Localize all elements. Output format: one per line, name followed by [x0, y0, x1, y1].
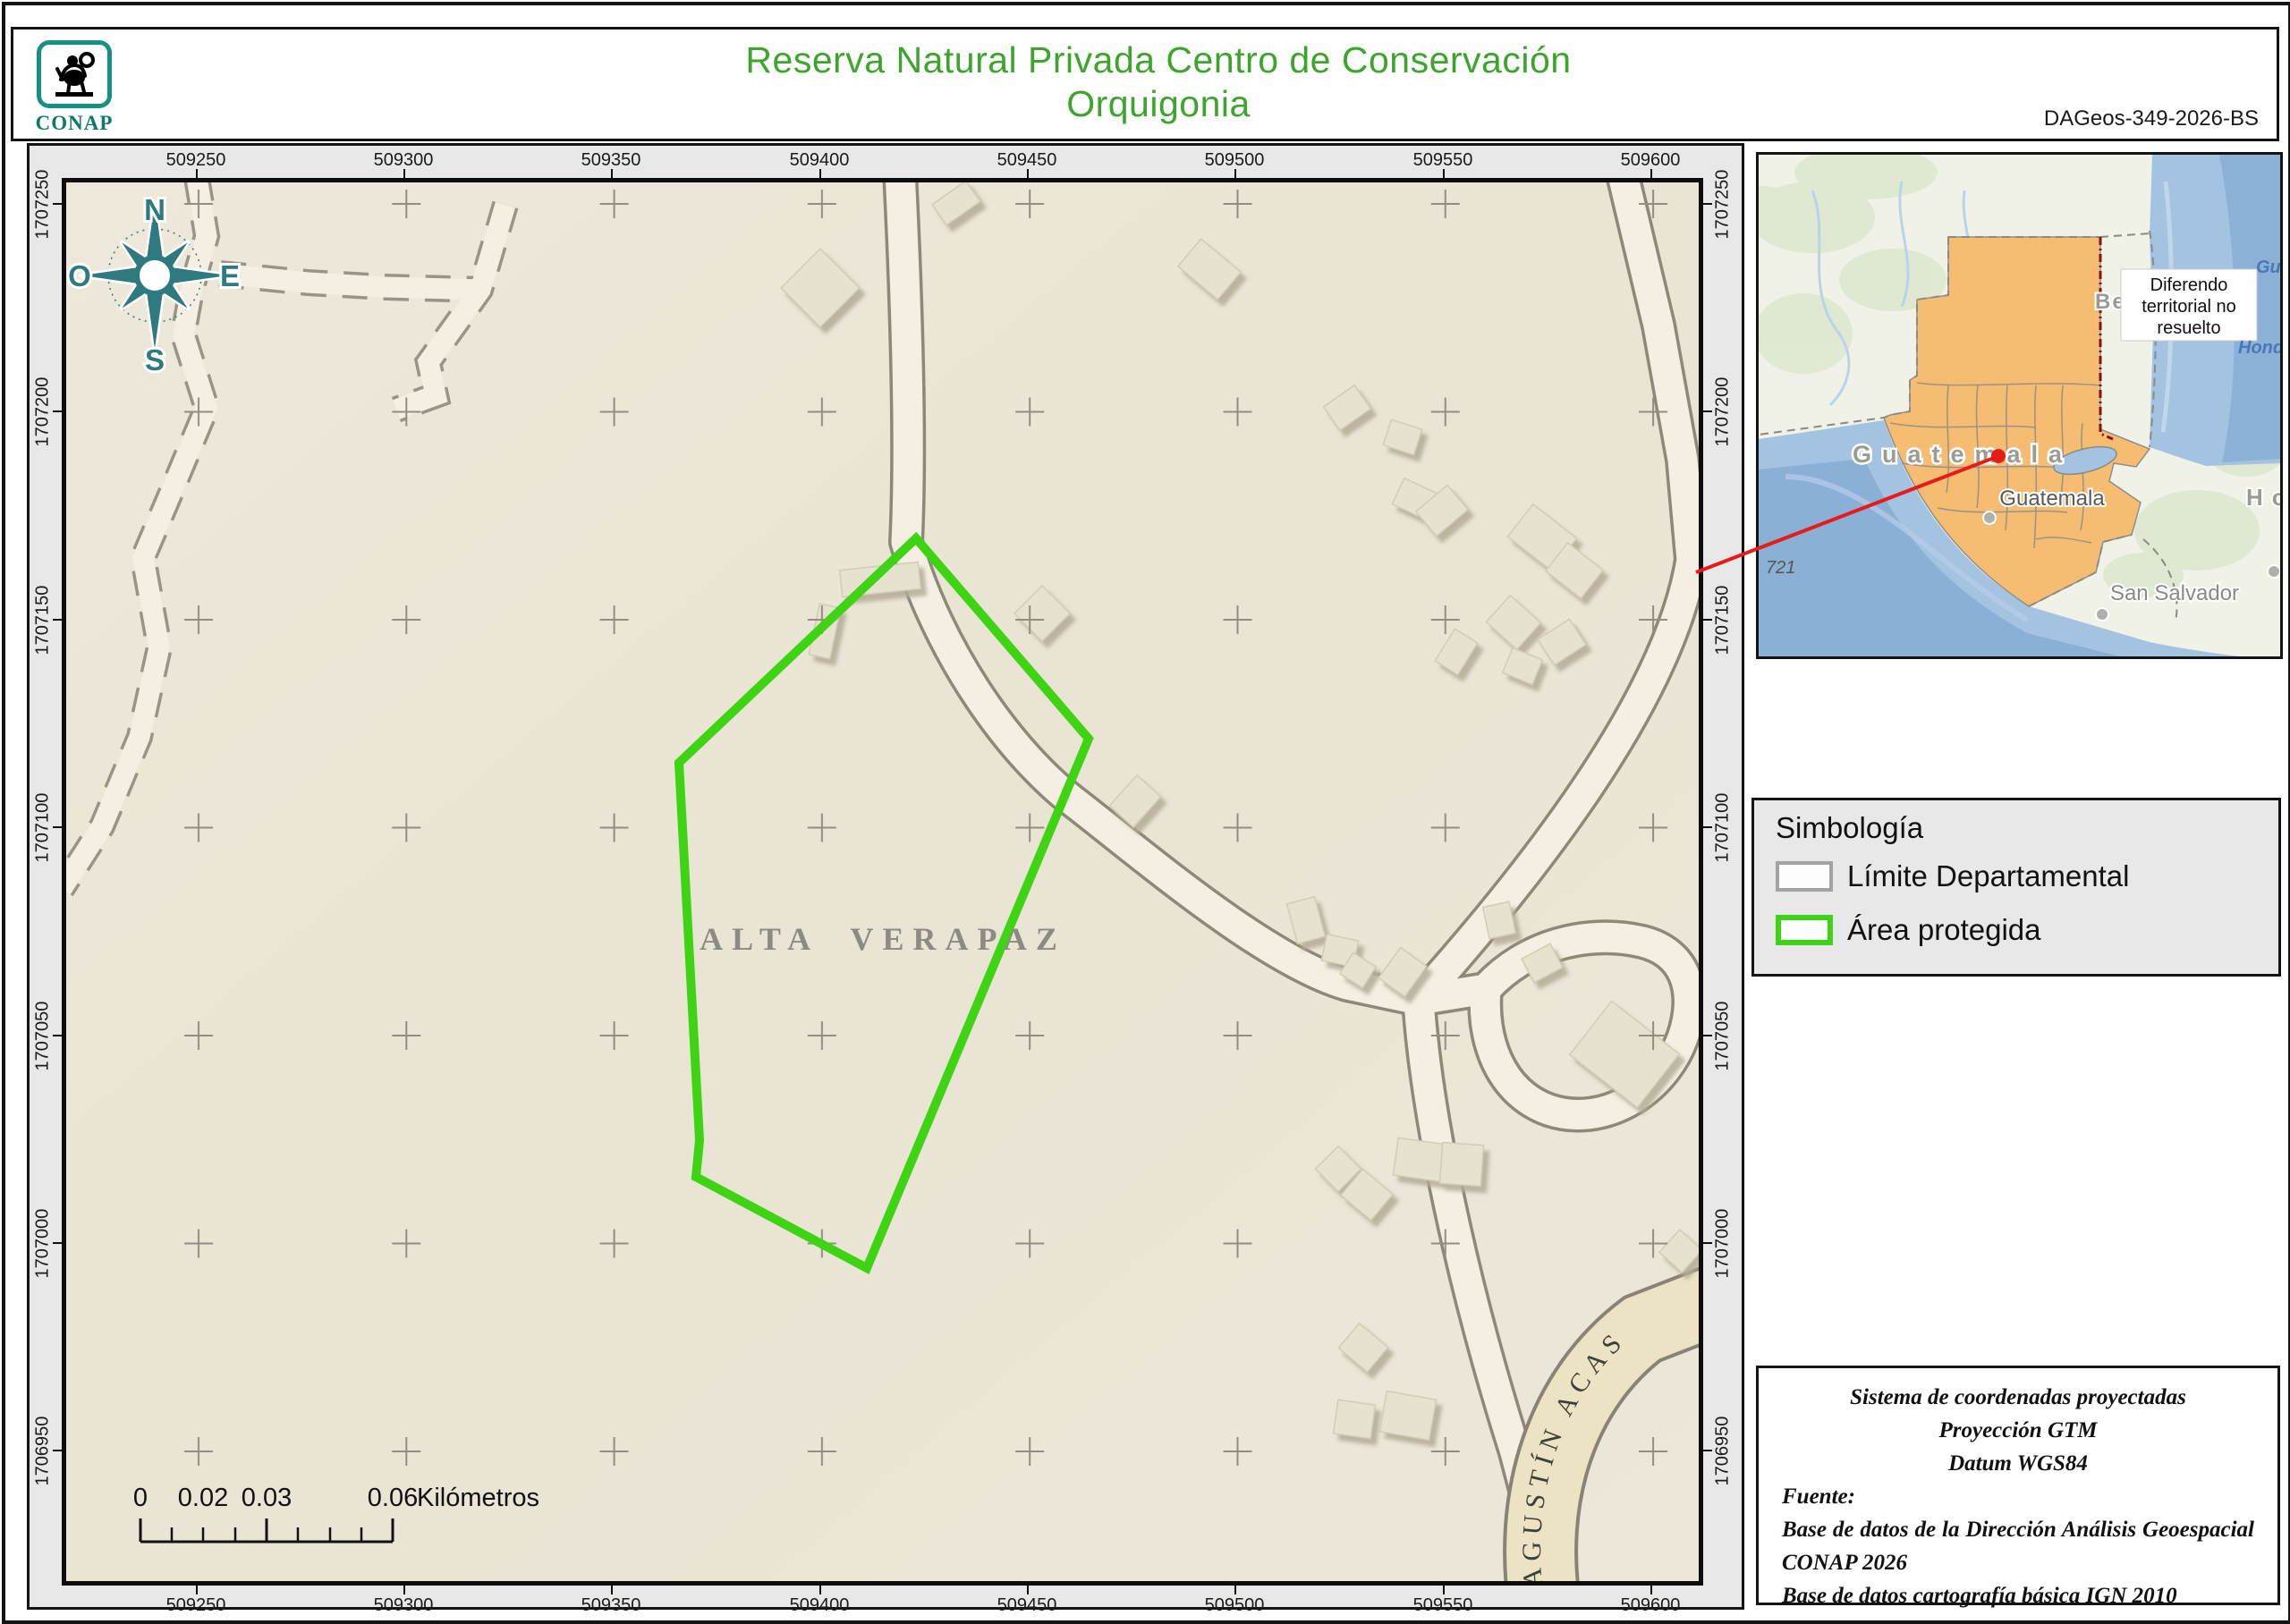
x-axis-label: 509350: [571, 151, 651, 178]
y-axis-label: 1707000: [1703, 1203, 1733, 1283]
grid-crosses: [66, 182, 1699, 1581]
scale-unit-label: Kilómetros: [417, 1484, 539, 1512]
title-line2: Orquigonia: [1066, 83, 1251, 124]
x-axis-label: 509500: [1194, 1586, 1275, 1623]
city-label: Guatemala: [1999, 486, 2105, 511]
x-axis-label: 509350: [571, 1586, 651, 1623]
y-axis-label: 1707150: [1703, 579, 1733, 660]
y-axis-label: 1707100: [1703, 787, 1733, 867]
header: CONAP Reserva Natural Privada Centro de …: [11, 27, 2279, 141]
protected-area-swatch: [1776, 915, 1833, 945]
x-axis-label: 509600: [1610, 1586, 1691, 1623]
source-line: CONAP 2026: [1782, 1546, 2254, 1579]
sea-label: Gu: [2256, 258, 2280, 277]
callout-line3: resuelto: [2157, 318, 2220, 338]
honduras-label: Honduras: [2246, 484, 2280, 511]
region-label: ALTA VERAPAZ: [700, 921, 1066, 957]
y-axis-label: 1707050: [1703, 995, 1733, 1076]
departmental-boundary-swatch: [1776, 861, 1833, 892]
x-axis-label: 509550: [1403, 151, 1483, 178]
callout-line2: territorial no: [2142, 297, 2236, 317]
y-axis-label: 1707200: [32, 371, 62, 452]
y-axis-label: 1707000: [32, 1203, 62, 1283]
y-axis-label: 1707150: [32, 579, 62, 660]
document-code: DAGeos-349-2026-BS: [2044, 106, 2259, 131]
y-axis-label: 1707200: [1703, 371, 1733, 452]
scale-label: 0.06: [368, 1484, 418, 1512]
x-axis-label: 509300: [363, 151, 444, 178]
y-axis-label: 1707250: [1703, 164, 1733, 244]
x-axis-label: 509250: [156, 1586, 236, 1623]
crs-line: Datum WGS84: [1782, 1447, 2254, 1480]
y-axis-label: 1706950: [1703, 1410, 1733, 1491]
inset-svg: Belice Diferendo territorial no resuelto…: [1759, 155, 2280, 656]
san-salvador-label: San Salvador: [2110, 581, 2239, 605]
inset-locator-map: Belice Diferendo territorial no resuelto…: [1756, 152, 2283, 659]
callout-line1: Diferendo: [2150, 275, 2228, 295]
legend-item-label: Área protegida: [1847, 913, 2040, 947]
main-map: 509250 509300 509350 509400 509450 50950…: [27, 143, 1744, 1610]
x-axis-label: 509400: [779, 151, 860, 178]
y-axis-label: 1707250: [32, 164, 62, 244]
depth-note: 721: [1766, 558, 1795, 578]
x-axis-label: 509400: [779, 1586, 860, 1623]
legend: Simbología Límite Departamental Área pro…: [1751, 798, 2281, 977]
x-axis-label: 509300: [363, 1586, 444, 1623]
x-axis-label: 509500: [1194, 151, 1275, 178]
y-axis-label: 1707050: [32, 995, 62, 1076]
compass-n-label: N: [144, 193, 165, 226]
city-dot: [2268, 565, 2280, 578]
city-dot: [2096, 608, 2108, 621]
crs-line: Proyección GTM: [1782, 1414, 2254, 1447]
map-svg: ALTA VERAPAZ AGUSTÍN ACAS 0 0.02 0.03 0.…: [66, 182, 1699, 1581]
page-title: Reserva Natural Privada Centro de Conser…: [398, 38, 1919, 126]
scale-label: 0.03: [242, 1484, 292, 1512]
conap-logo-icon: [37, 40, 112, 108]
legend-item-protected-area: Área protegida: [1776, 909, 2040, 951]
x-axis-label: 509550: [1403, 1586, 1483, 1623]
source-line: Base de datos cartografía básica IGN 201…: [1782, 1579, 2254, 1612]
source-line: Base de datos de la Dirección Análisis G…: [1782, 1513, 2254, 1546]
compass-o-label: O: [68, 259, 91, 292]
logo-text: CONAP: [30, 112, 119, 135]
x-axis-label: 509450: [987, 1586, 1067, 1623]
scale-label: 0: [133, 1484, 148, 1512]
coordinate-system-info: Sistema de coordenadas proyectadas Proye…: [1756, 1366, 2280, 1605]
country-label: Guatemala: [1853, 441, 2073, 468]
monkey-icon: [48, 49, 100, 99]
source-label: Fuente:: [1782, 1480, 2254, 1513]
compass-e-label: E: [220, 259, 240, 292]
map-canvas: ALTA VERAPAZ AGUSTÍN ACAS 0 0.02 0.03 0.…: [62, 178, 1703, 1586]
scale-label: 0.02: [178, 1484, 228, 1512]
legend-item-label: Límite Departamental: [1847, 859, 2129, 893]
city-dot: [1983, 512, 1996, 524]
x-axis-label: 509600: [1610, 151, 1691, 178]
x-axis-label: 509450: [987, 151, 1067, 178]
legend-title: Simbología: [1776, 811, 1923, 845]
crs-line: Sistema de coordenadas proyectadas: [1782, 1381, 2254, 1414]
legend-item-departmental: Límite Departamental: [1776, 856, 2129, 897]
y-axis-label: 1706950: [32, 1410, 62, 1491]
sea-label: Hond: [2238, 338, 2280, 358]
y-axis-label: 1707100: [32, 787, 62, 867]
territorial-note-callout: Diferendo territorial no resuelto: [2121, 269, 2257, 341]
title-line1: Reserva Natural Privada Centro de Conser…: [745, 39, 1571, 80]
x-axis-label: 509250: [156, 151, 236, 178]
compass-s-label: S: [145, 343, 165, 376]
